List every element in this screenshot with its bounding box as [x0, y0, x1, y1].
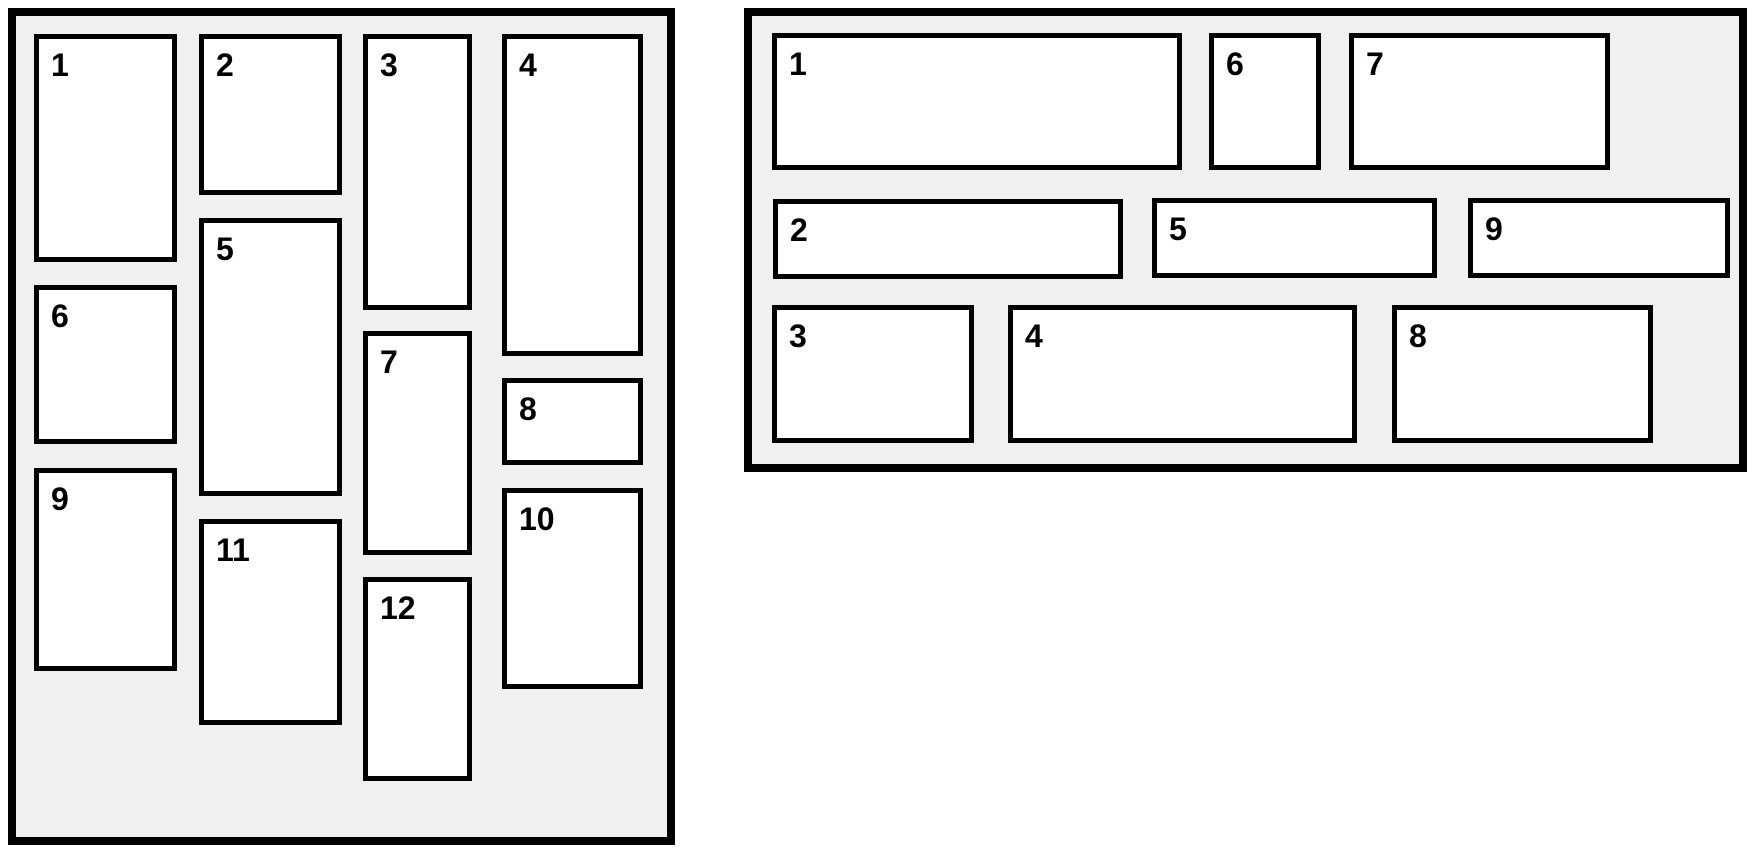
masonry-panel-box-2: 2: [199, 34, 342, 195]
masonry-panel-box-9: 9: [34, 468, 177, 671]
box-number-label: 6: [1214, 38, 1316, 90]
box-number-label: 6: [39, 290, 172, 342]
box-number-label: 4: [507, 39, 638, 91]
box-number-label: 10: [507, 493, 638, 545]
rows-panel-box-7: 7: [1349, 33, 1610, 170]
rows-panel-box-3: 3: [772, 305, 974, 443]
rows-panel-box-5: 5: [1152, 198, 1437, 278]
box-number-label: 1: [39, 39, 172, 91]
rows-panel-box-4: 4: [1008, 305, 1357, 443]
masonry-panel-box-10: 10: [502, 488, 643, 689]
box-number-label: 4: [1013, 310, 1352, 362]
box-number-label: 9: [39, 473, 172, 525]
box-number-label: 2: [778, 204, 1118, 256]
box-number-label: 3: [368, 39, 467, 91]
box-number-label: 5: [1157, 203, 1432, 255]
masonry-panel-box-1: 1: [34, 34, 177, 262]
masonry-panel-box-11: 11: [199, 519, 342, 725]
masonry-panel-box-12: 12: [363, 577, 472, 781]
box-number-label: 2: [204, 39, 337, 91]
rows-panel-box-9: 9: [1468, 198, 1730, 278]
box-number-label: 8: [507, 383, 638, 435]
box-number-label: 11: [204, 524, 337, 576]
diagram-canvas: 123456789101112 123456789: [0, 0, 1755, 852]
masonry-panel-box-4: 4: [502, 34, 643, 356]
masonry-panel: 123456789101112: [8, 8, 675, 845]
masonry-panel-box-5: 5: [199, 218, 342, 496]
rows-panel-box-1: 1: [772, 33, 1182, 170]
box-number-label: 8: [1397, 310, 1648, 362]
box-number-label: 9: [1473, 203, 1725, 255]
rows-panel-box-2: 2: [773, 199, 1123, 279]
box-number-label: 7: [1354, 38, 1605, 90]
masonry-panel-box-7: 7: [363, 331, 472, 555]
rows-panel-box-6: 6: [1209, 33, 1321, 170]
masonry-panel-box-3: 3: [363, 34, 472, 310]
masonry-panel-box-8: 8: [502, 378, 643, 465]
rows-panel: 123456789: [744, 8, 1747, 472]
box-number-label: 7: [368, 336, 467, 388]
masonry-panel-box-6: 6: [34, 285, 177, 444]
box-number-label: 5: [204, 223, 337, 275]
rows-panel-box-8: 8: [1392, 305, 1653, 443]
box-number-label: 12: [368, 582, 467, 634]
box-number-label: 1: [777, 38, 1177, 90]
box-number-label: 3: [777, 310, 969, 362]
